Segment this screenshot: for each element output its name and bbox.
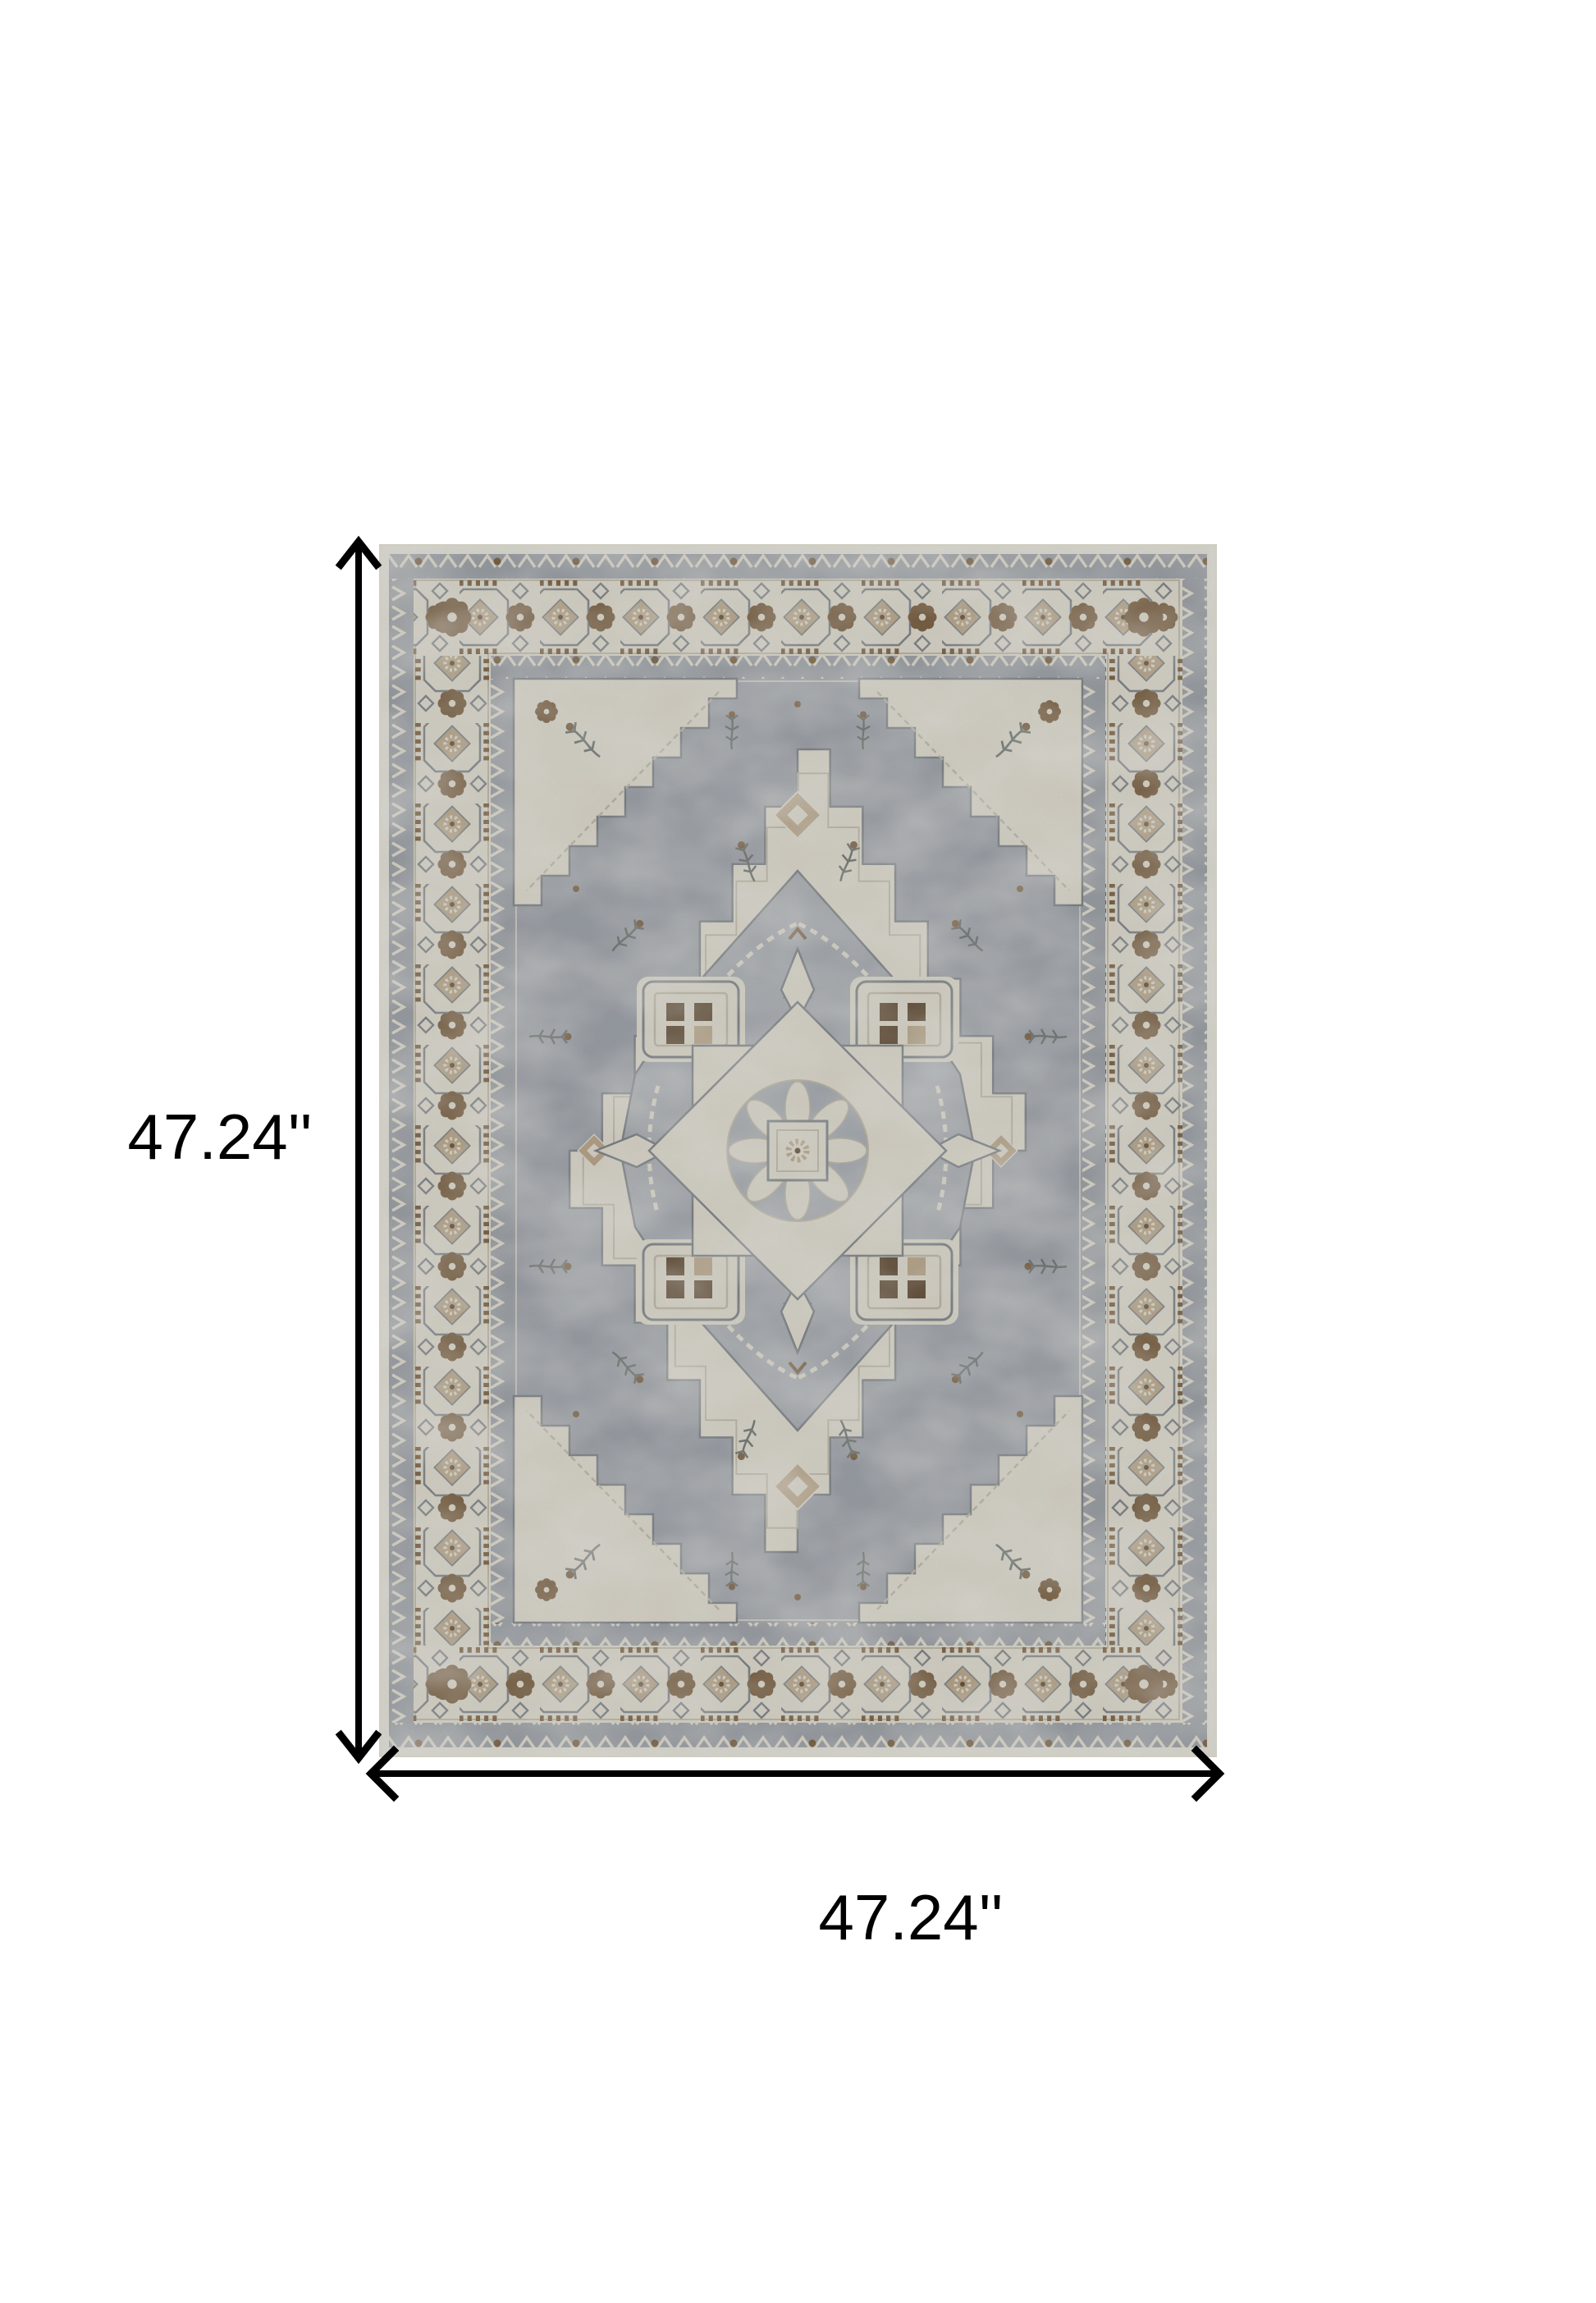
product-dimension-image: 47.24'' 47.24'' [0, 0, 1596, 2303]
height-dimension-label: 47.24'' [120, 1104, 320, 1170]
width-dimension-label: 47.24'' [811, 1884, 1011, 1950]
rug-texture-overlay [379, 544, 1217, 1757]
rug-photo [379, 544, 1217, 1757]
width-dimension-arrow [371, 1751, 1219, 1797]
height-dimension-arrow [341, 542, 377, 1758]
